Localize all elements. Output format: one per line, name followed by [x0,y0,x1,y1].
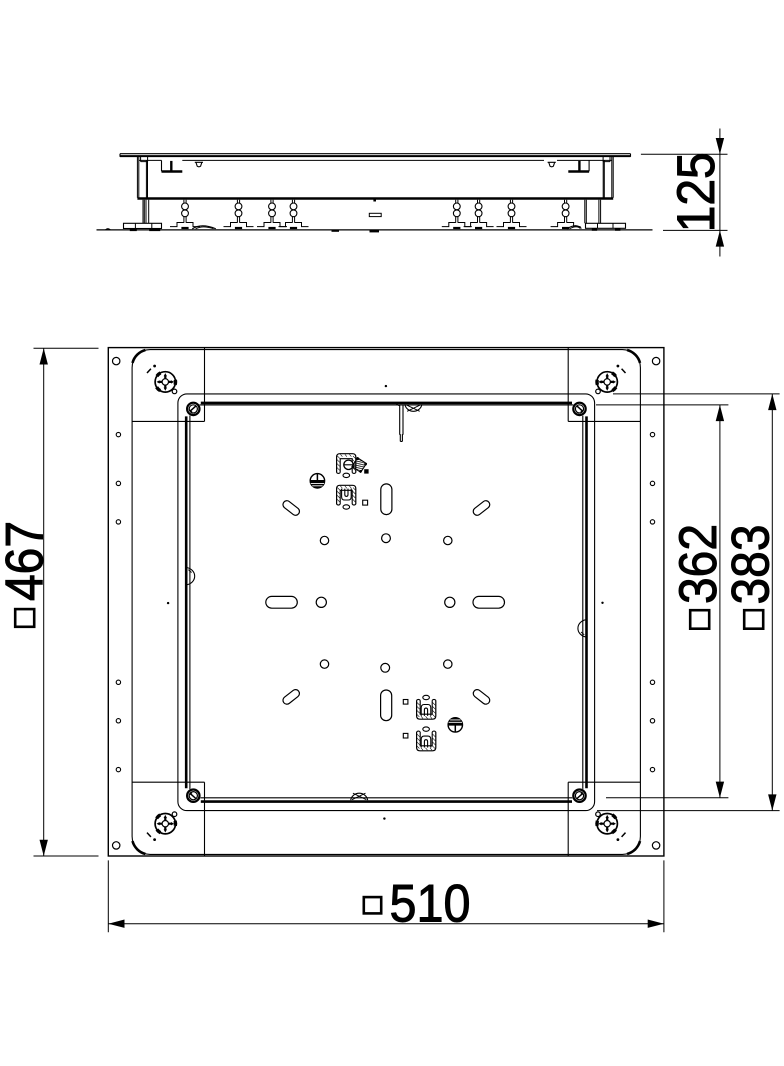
svg-text:362: 362 [669,524,728,604]
svg-text:510: 510 [390,875,471,934]
svg-text:125: 125 [667,152,726,232]
svg-text:383: 383 [721,525,780,605]
svg-text:467: 467 [0,521,55,601]
